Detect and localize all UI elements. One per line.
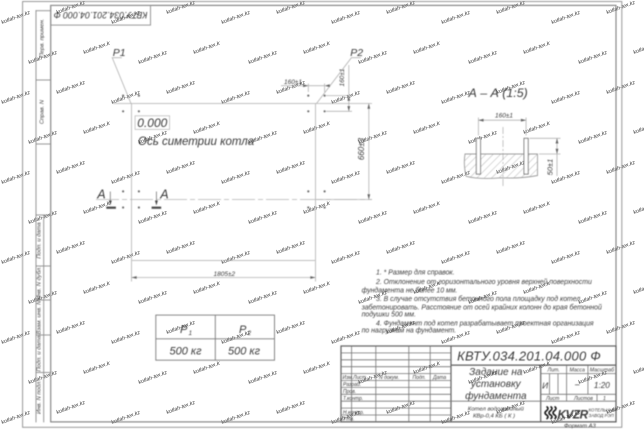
svg-text:Формат А3: Формат А3 [564, 423, 596, 429]
svg-text:Т.контр.: Т.контр. [343, 396, 363, 402]
svg-text:N докум.: N докум. [379, 375, 399, 381]
svg-text:Ось симетрии котла: Ось симетрии котла [138, 136, 254, 148]
svg-text:Листов: Листов [573, 396, 593, 402]
svg-text:P1: P1 [113, 47, 126, 59]
svg-text:KVZR: KVZR [558, 408, 589, 422]
svg-text:50±1: 50±1 [546, 159, 555, 176]
svg-text:P: P [239, 324, 247, 336]
svg-text:подушки 500 мм.: подушки 500 мм. [362, 311, 416, 319]
svg-text:Лит.: Лит. [547, 368, 560, 374]
svg-text:Лист: Лист [545, 396, 560, 402]
svg-text:КВр-0,4 КБ ( К ): КВр-0,4 КБ ( К ) [473, 413, 515, 419]
svg-text:Разраб.: Разраб. [343, 382, 361, 388]
svg-text:Утв.: Утв. [343, 417, 354, 423]
svg-text:ЗАВОД РЭП: ЗАВОД РЭП [589, 413, 615, 418]
svg-text:фундамента: фундамента [465, 390, 527, 402]
svg-text:160±1: 160±1 [495, 112, 513, 119]
svg-text:660±3: 660±3 [357, 137, 366, 160]
svg-text:И: И [542, 380, 549, 390]
svg-text:установку: установку [470, 379, 522, 390]
svg-text:1: 1 [189, 330, 193, 337]
svg-text:Дата: Дата [432, 375, 446, 381]
svg-text:забетонировать. Расстояние от: забетонировать. Расстояние от осей крайн… [361, 303, 602, 311]
svg-text:160±1: 160±1 [284, 79, 302, 86]
svg-text:–: – [574, 380, 580, 389]
svg-text:A: A [96, 188, 105, 202]
svg-text:Перв. примен.: Перв. примен. [40, 19, 46, 58]
svg-text:500 кг: 500 кг [170, 346, 203, 358]
svg-text:Пров.: Пров. [343, 389, 356, 395]
svg-text:Задание на: Задание на [469, 367, 523, 378]
svg-text:Изм.Лист: Изм.Лист [343, 375, 367, 381]
svg-text:P: P [180, 324, 188, 336]
svg-text:1: 1 [603, 396, 606, 402]
svg-text:Справ. N: Справ. N [40, 99, 46, 124]
svg-text:1. * Размер для справок.: 1. * Размер для справок. [376, 269, 455, 277]
svg-text:A: A [159, 188, 168, 202]
svg-text:2: 2 [247, 330, 252, 337]
svg-text:Взам. инв. N: Взам. инв. N [37, 300, 43, 335]
svg-text:2. Отклонение от горизонтально: 2. Отклонение от горизонтального уровня … [375, 278, 592, 286]
svg-text:500 кг: 500 кг [228, 346, 261, 358]
svg-text:Инв. N подл.: Инв. N подл. [37, 380, 43, 414]
svg-text:1:20: 1:20 [594, 381, 610, 390]
svg-text:КВТУ.034.201.04.000 Ф: КВТУ.034.201.04.000 Ф [457, 348, 601, 363]
svg-text:Масса: Масса [570, 368, 585, 374]
svg-text:0.000: 0.000 [137, 116, 167, 130]
svg-text:Подп. и дата: Подп. и дата [37, 335, 43, 372]
svg-text:Инв. N дубл.: Инв. N дубл. [37, 266, 43, 300]
svg-text:Н.контр.: Н.контр. [343, 410, 364, 416]
svg-text:КОТЕЛЬНЫЙ: КОТЕЛЬНЫЙ [589, 408, 617, 413]
svg-text:160±1: 160±1 [339, 68, 346, 86]
svg-text:по нагрузкам на фундамент.: по нагрузкам на фундамент. [362, 327, 457, 335]
svg-text:1805±2: 1805±2 [214, 271, 236, 278]
svg-text:Котел водогрейный: Котел водогрейный [468, 405, 525, 412]
svg-text:Масштаб: Масштаб [590, 368, 615, 374]
svg-text:Подп.: Подп. [413, 375, 426, 381]
svg-text:А – А (1:5): А – А (1:5) [468, 86, 528, 100]
svg-text:3. В случае отсутствия бетонно: 3. В случае отсутствия бетонного пола пл… [376, 295, 580, 303]
svg-text:фундамента не более 10 мм.: фундамента не более 10 мм. [362, 286, 458, 294]
svg-text:Подп. и дата: Подп. и дата [37, 222, 43, 259]
svg-text:4. Фундамент под котел разраба: 4. Фундамент под котел разрабатывает про… [376, 319, 594, 327]
svg-text:КВТУ.034.201.04.000 Ф: КВТУ.034.201.04.000 Ф [54, 10, 148, 20]
